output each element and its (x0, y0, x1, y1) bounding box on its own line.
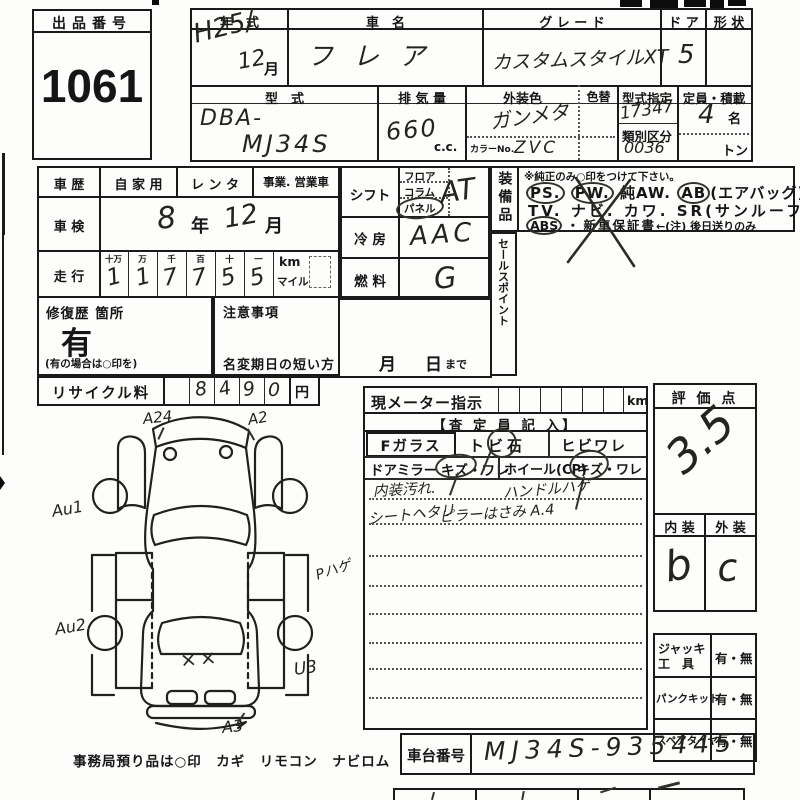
fuel-value: G (432, 260, 458, 296)
sales-point-box: セールスポイント (490, 232, 517, 376)
model-prefix-value: DBA- (200, 106, 263, 131)
caution-month: 月 (379, 350, 396, 375)
divider (39, 250, 338, 252)
meter-label: 現メーター指示 (371, 392, 483, 413)
cutoff-table-border (577, 790, 579, 800)
dotted-divider (679, 133, 749, 135)
mileage-mile-unit: マイル (277, 274, 309, 289)
chassis-number-label: 車台番号 (402, 745, 470, 766)
score-box: 評 価 点 3.5 内 装 外 装 b c (653, 383, 757, 612)
damage-code-xx: ×× (179, 645, 220, 672)
divider (517, 168, 519, 230)
exterior-header: 外 装 (706, 517, 755, 536)
divider (540, 388, 541, 412)
divider (561, 388, 562, 412)
divider (289, 378, 291, 404)
color-no-label: カラーNo. (470, 142, 514, 155)
mileage-digit: 7 (161, 264, 180, 292)
recycle-digit: 9 (241, 377, 256, 400)
header-grade: グ レ ー ド (484, 12, 660, 31)
divider (582, 388, 583, 412)
caution-day: 日 (425, 350, 442, 375)
header-car-name: 車 名 (289, 12, 482, 31)
year-month-value: 12 (236, 45, 268, 74)
cutoff-title-fragment (728, 0, 746, 6)
washer-nozzle (164, 448, 176, 460)
damage-code-a24: A24 (142, 407, 173, 428)
left-rail (92, 555, 114, 611)
car-diagram (50, 403, 350, 748)
equip-abs-circled: ABS (526, 216, 562, 235)
office-items-caption: 事務局預り品は○印 カギ リモコン ナビロム (73, 750, 390, 770)
sales-point-label: セールスポイント (497, 238, 509, 326)
caution-line: 名変期日の短い方 (223, 354, 335, 373)
cutoff-title-fragment (620, 0, 642, 7)
note-rule (369, 498, 642, 500)
divider (189, 378, 190, 404)
fuel-label: 燃 料 (342, 270, 398, 290)
header-model: 型 式 (192, 88, 377, 107)
capacity-unit: 名 (728, 108, 741, 127)
front-wheel-right (273, 479, 307, 513)
mileage-digit: 5 (247, 263, 267, 291)
class-category-value: 0036 (624, 138, 665, 157)
note-rule (369, 523, 642, 525)
scan-mark (152, 0, 159, 5)
shaken-year-unit: 年 (191, 212, 209, 238)
shaken-month-value: 12 (221, 198, 260, 234)
note-rule (369, 585, 642, 587)
assessor-table: 現メーター指示 km 【査 定 員 記 入】 Fガラス トビ石 ヒビワレ ドアミ… (363, 386, 648, 730)
divider (192, 85, 751, 87)
divider (623, 388, 624, 412)
f-glass-label: Fガラス (368, 435, 454, 456)
shift-table: シフト フロア コラム パネル AT 冷 房 AAC 燃 料 G (340, 166, 490, 300)
scan-mark (0, 476, 5, 490)
shaken-year-value: 8 (155, 200, 178, 237)
door-value: 5 (678, 40, 695, 70)
year-month-unit: 月 (264, 58, 279, 79)
f-glass-cell: Fガラス (366, 432, 456, 457)
recycle-yen-unit: 円 (295, 382, 309, 402)
displacement-value: 660 (385, 114, 439, 146)
hand-stroke (431, 792, 435, 800)
car-name-value: フレア (307, 36, 445, 73)
divider (342, 257, 488, 259)
mileage-label: 走 行 (39, 266, 99, 285)
divider (548, 432, 550, 456)
interior-grade-value: b (661, 539, 696, 592)
mileage-digit: 5 (218, 263, 238, 291)
cutoff-table-border (475, 790, 477, 800)
tail-light (205, 691, 235, 704)
left-front-panel (118, 436, 145, 509)
damage-code-a2: A2 (246, 408, 269, 429)
mileage-unit-checkbox (309, 256, 331, 288)
cross-out-mark (558, 172, 650, 274)
header-shape: 形 状 (707, 12, 751, 31)
cutoff-table-border (393, 788, 745, 790)
equip-warranty-note: ←(注) 後日送りのみ (656, 220, 756, 233)
history-commercial: 事業. 営業車 (254, 174, 338, 190)
history-rental: レ ン タ (178, 174, 252, 193)
divider (273, 252, 274, 296)
right-rail (286, 555, 308, 611)
history-label: 車 歴 (39, 174, 99, 193)
divider (264, 378, 265, 404)
note-rule (369, 668, 642, 670)
recycle-digit: 0 (268, 379, 280, 401)
divider (655, 535, 755, 537)
divider (470, 735, 472, 773)
puncture-kit-value: 有・無 (715, 689, 753, 708)
cooling-value: AAC (409, 217, 477, 252)
divider (214, 378, 215, 404)
shift-label: シフト (342, 184, 398, 204)
cutoff-table-border (393, 790, 395, 800)
header-door: ド ア (662, 12, 705, 31)
vehicle-table: 年 式 車 名 グ レ ー ド ド ア 形 状 H25/ 12 月 フレア カス… (190, 8, 753, 162)
mileage-digit: 1 (133, 263, 153, 292)
right-front-panel (255, 436, 282, 509)
jack-label-line2: 工 具 (658, 655, 694, 672)
ton-label: トン (722, 140, 748, 159)
tail-light (167, 691, 197, 704)
shaken-month-unit: 月 (265, 212, 283, 238)
puncture-kit-label: パンクキット (656, 691, 720, 706)
note-rule (369, 697, 642, 699)
recycle-digit: 8 (193, 377, 208, 400)
grade-value: カスタムスタイルXT (492, 42, 669, 75)
divider (34, 31, 150, 33)
repair-note: (有の場合は○印を) (45, 356, 137, 371)
recycle-label: リサイクル料 (39, 382, 163, 403)
meter-km-unit: km (627, 393, 648, 408)
divider (398, 168, 400, 298)
cutoff-table-border (743, 790, 745, 800)
chassis-number-box: 車台番号 MJ34S-935445 (400, 733, 755, 775)
cutoff-table-border (649, 790, 651, 800)
interior-header: 内 装 (655, 517, 704, 536)
scan-edge-line (2, 235, 4, 455)
cutoff-title-fragment (684, 0, 706, 7)
equipment-label: 装備品 (496, 171, 511, 225)
divider (519, 388, 520, 412)
hand-stroke (521, 791, 525, 800)
caution-label: 注意事項 (223, 302, 279, 321)
model-value: MJ34S (242, 130, 331, 158)
displacement-unit: c.c. (434, 140, 457, 154)
header-displacement: 排 気 量 (379, 88, 465, 107)
exterior-grade-value: c (715, 545, 740, 591)
note-rule (369, 555, 642, 557)
door-mirror-label: ドアミラー (370, 459, 437, 479)
divider (655, 676, 755, 678)
recycle-fee-row: リサイクル料 8 4 9 0 円 (37, 376, 320, 406)
shift-value: AT (438, 171, 478, 210)
lot-number-label: 出品番号 (34, 13, 150, 33)
lot-number-value: 1061 (34, 59, 150, 113)
mileage-digit: 1 (104, 263, 124, 292)
color-no-value: ZVC (514, 138, 558, 158)
washer-nozzle (220, 446, 232, 458)
scan-edge-line (2, 153, 5, 235)
caution-made: まで (445, 356, 467, 372)
history-private: 自 家 用 (101, 174, 176, 193)
divider (498, 456, 500, 478)
divider (163, 378, 165, 404)
mileage-digit: 7 (190, 264, 209, 292)
note-rule (369, 613, 642, 615)
divider (603, 388, 604, 412)
damage-code-u3: U3 (293, 657, 319, 680)
left-rail (92, 655, 114, 695)
divider (498, 388, 499, 412)
note-rule (369, 642, 642, 644)
caution-box: 注意事項 名変期日の短い方 月 日 まで (211, 296, 492, 378)
lot-number-box: 出品番号 1061 (32, 9, 152, 160)
recycle-digit: 4 (217, 377, 233, 401)
divider (655, 718, 755, 720)
cooling-label: 冷 房 (342, 228, 398, 248)
capacity-value: 4 (698, 100, 715, 130)
shaken-label: 車 検 (39, 216, 99, 235)
shift-option-floor: フロア (404, 169, 436, 184)
chassis-number-value: MJ34S-935445 (483, 728, 737, 766)
divider (239, 378, 240, 404)
front-wheel-left (93, 479, 127, 513)
divider (39, 196, 338, 198)
jack-value: 有・無 (715, 648, 753, 667)
windshield (151, 506, 249, 545)
auction-sheet: 出品番号 1061 年 式 車 名 グ レ ー ド ド ア 形 状 H25/ 1… (0, 0, 800, 800)
mileage-km-unit: km (279, 254, 300, 269)
header-color-change: 色替 (580, 88, 617, 105)
